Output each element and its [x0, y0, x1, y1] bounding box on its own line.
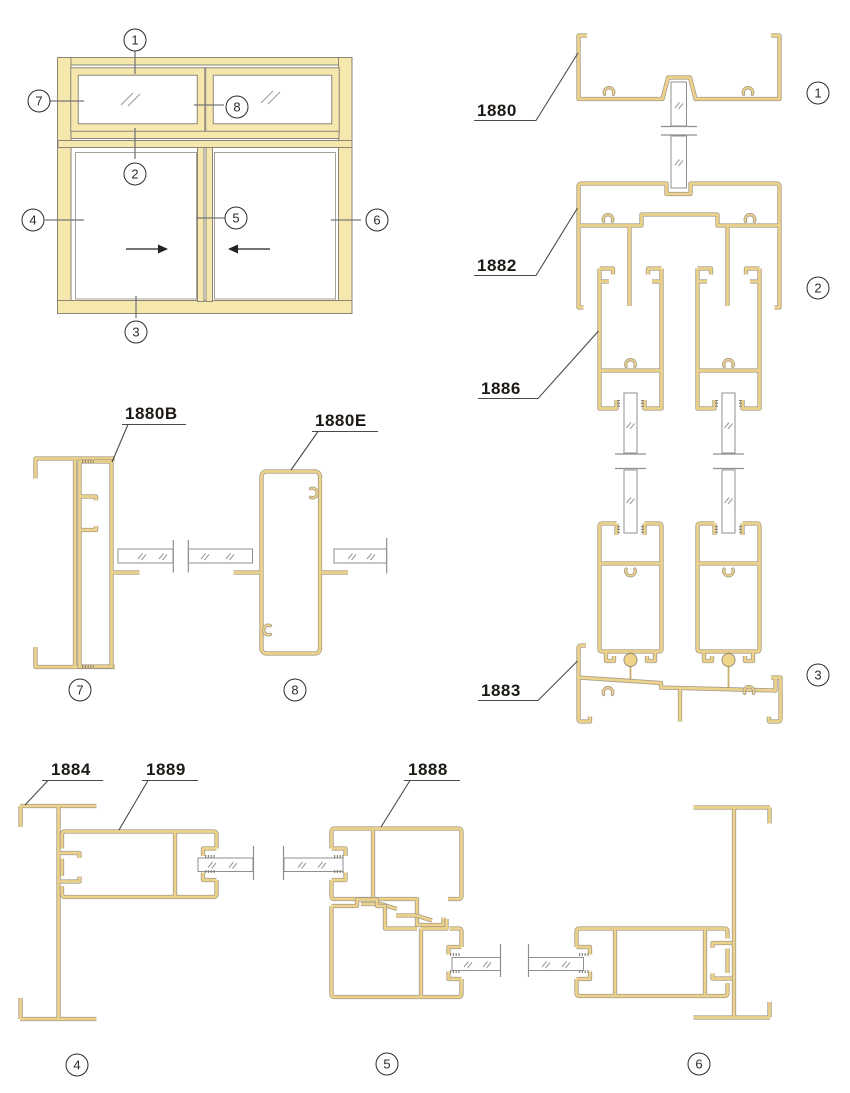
frame-member-section7	[36, 459, 116, 668]
elevation-interlock-stile	[198, 148, 205, 302]
callout-elevation-right-jamb: 6	[366, 209, 389, 232]
callout-elevation-interlock: 5	[225, 207, 248, 230]
window-elevation-drawing	[45, 51, 361, 318]
label-profile-1886: 1886	[481, 379, 521, 399]
profile-1884-section	[20, 806, 97, 1019]
profile-1883-section	[579, 646, 781, 722]
callout-elevation-head: 1	[124, 29, 147, 52]
upper-horizontal-section-drawing	[36, 459, 387, 668]
callout-section-transom: 2	[807, 277, 830, 300]
profile-1888-upper-section	[332, 829, 462, 926]
profile-1888-lower-section	[332, 900, 462, 998]
callout-section-head: 1	[807, 82, 830, 105]
profile-right-sash-section	[577, 929, 728, 997]
label-profile-1880B: 1880B	[125, 404, 178, 424]
elevation-transom-bar2	[58, 141, 352, 148]
diagram-page: 1880 1882 1886 1883 1880B 1880E 1884 188…	[0, 0, 850, 1093]
elevation-transom-bar	[71, 131, 339, 139]
upper-left-fixed-sash	[75, 72, 202, 128]
elevation-sill	[58, 301, 353, 314]
label-profile-1883: 1883	[481, 681, 521, 701]
label-leader-lines	[25, 53, 599, 830]
sliding-glass	[198, 858, 253, 872]
vertical-section-drawing	[579, 36, 781, 722]
label-profile-1880: 1880	[477, 101, 517, 121]
label-profile-1889: 1889	[146, 760, 186, 780]
label-profile-1882: 1882	[477, 256, 517, 276]
callout-section-right-jamb: 6	[688, 1053, 711, 1076]
callout-elevation-upper-left-jamb: 7	[28, 90, 51, 113]
elevation-right-jamb	[339, 58, 353, 314]
callout-section-sill: 3	[807, 664, 830, 687]
callout-section-interlock: 5	[376, 1053, 399, 1076]
callout-elevation-left-jamb: 4	[22, 209, 45, 232]
lower-horizontal-section-drawing	[20, 806, 770, 1019]
fixed-glass	[118, 549, 173, 563]
callout-elevation-transom: 2	[124, 163, 147, 186]
callout-elevation-upper-mullion: 8	[226, 96, 249, 119]
profile-1889-section	[62, 832, 217, 898]
profile-1882-section	[579, 184, 780, 308]
elevation-head-frame	[58, 58, 353, 66]
profile-1880B-section	[80, 462, 140, 667]
callout-section-upper-mullion: 8	[284, 679, 307, 702]
callout-elevation-sill: 3	[125, 321, 148, 344]
label-profile-1880E: 1880E	[315, 411, 367, 431]
label-profile-1888: 1888	[408, 760, 448, 780]
callout-section-upper-jamb: 7	[69, 679, 92, 702]
elevation-left-jamb	[58, 58, 72, 314]
label-profile-1884: 1884	[51, 760, 91, 780]
profile-1886-left-sash	[600, 269, 662, 662]
callout-section-left-jamb: 4	[66, 1054, 89, 1077]
profile-1886-right-sash	[698, 269, 760, 662]
